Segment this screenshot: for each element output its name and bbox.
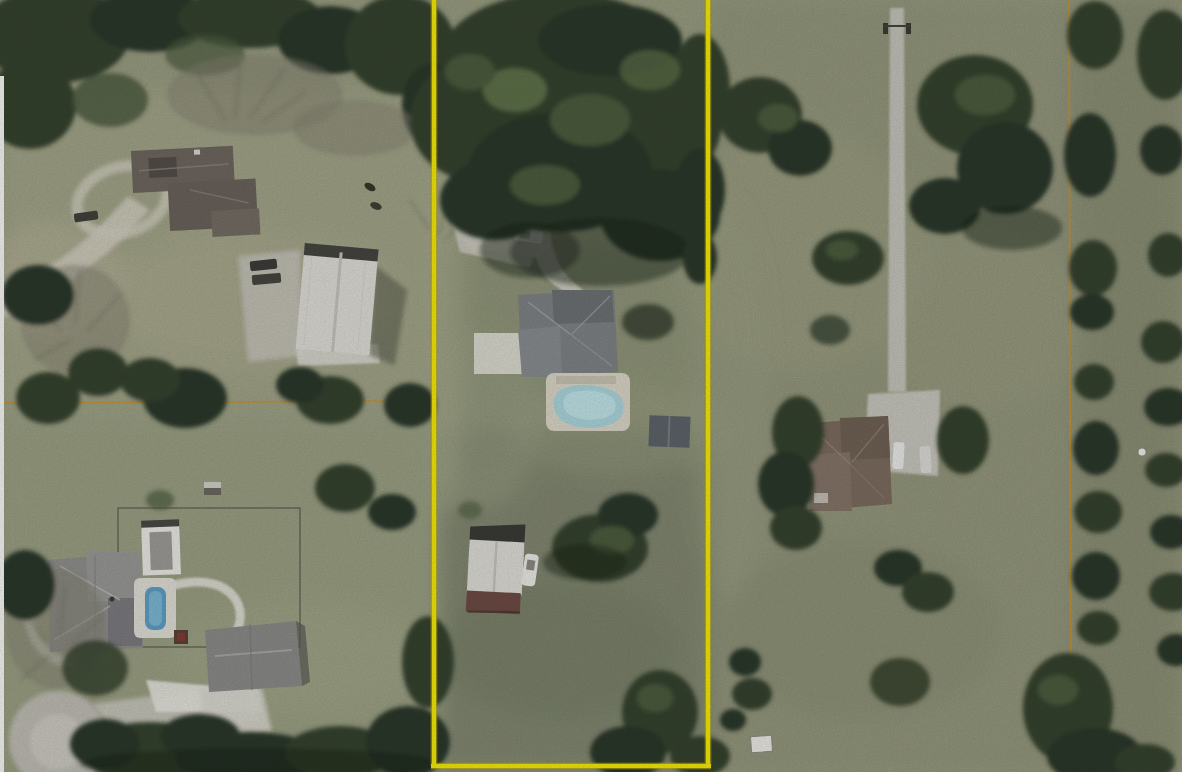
photo-grain bbox=[0, 0, 1182, 772]
aerial-photo: .t1{fill:#36432f}.t2{fill:#2b372a}.t3{fi… bbox=[0, 0, 1182, 772]
aerial-photo-canvas: .t1{fill:#36432f}.t2{fill:#2b372a}.t3{fi… bbox=[0, 0, 1182, 772]
